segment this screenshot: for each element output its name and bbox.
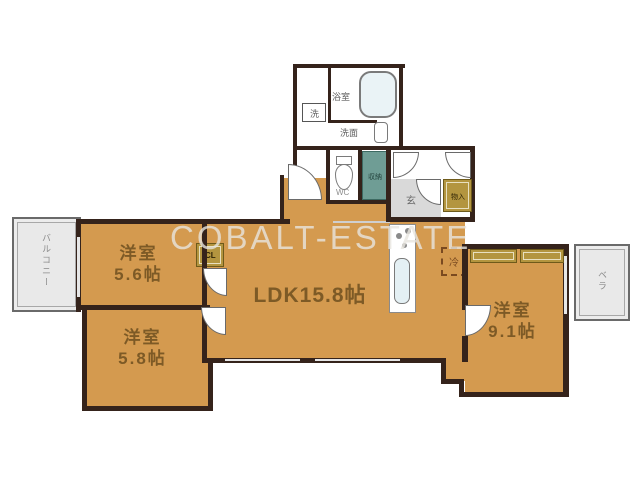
wall — [293, 64, 405, 68]
washer-label: 洗 — [310, 107, 319, 120]
wall — [280, 175, 284, 224]
floor-plan: バルコニー ベラ 浴室 洗 洗面 WC 収納 玄 — [0, 0, 640, 480]
bath-label: 浴室 — [332, 90, 350, 103]
wall — [459, 379, 464, 397]
window-segment — [564, 256, 567, 314]
kitchen-sink-icon — [394, 258, 410, 304]
wall — [331, 120, 377, 123]
wall — [76, 305, 210, 310]
washroom-label: 洗面 — [340, 126, 358, 139]
watermark-text: COBALT-ESTATE — [170, 219, 471, 257]
window-segment — [315, 359, 400, 361]
wc-label: WC — [336, 188, 349, 197]
wall — [82, 305, 87, 411]
wall — [328, 67, 331, 123]
bedroom3-size: 9.1帖 — [470, 321, 555, 342]
wall — [208, 358, 213, 411]
washer-box: 洗 — [302, 103, 326, 122]
storage-closet: 収納 — [362, 151, 387, 200]
bedroom3-closet-inner — [473, 252, 514, 260]
bedroom3-closet-box — [520, 249, 564, 263]
bedroom3-label: 洋室 9.1帖 — [470, 300, 555, 343]
bedroom3-closet-inner — [523, 252, 561, 260]
balcony-right: ベラ — [574, 244, 630, 321]
wall — [293, 64, 297, 180]
bedroom2-name: 洋室 — [100, 327, 185, 348]
wall — [399, 64, 403, 150]
entrance-label: 玄 — [406, 192, 416, 207]
wall — [326, 200, 391, 204]
bedroom1-name: 洋室 — [96, 243, 181, 264]
bedroom1-size: 5.6帖 — [96, 264, 181, 285]
balcony-right-label: ベラ — [596, 270, 609, 292]
bathtub-icon — [359, 71, 397, 118]
hall-storage-box: 物入 — [443, 179, 472, 212]
bedroom3-closet-box — [470, 249, 517, 263]
wall — [459, 392, 569, 397]
wall — [462, 336, 468, 362]
window-segment — [225, 359, 300, 361]
balcony-left-label: バルコニー — [40, 233, 53, 288]
wall — [326, 150, 330, 204]
bedroom3-notch-floor — [446, 360, 466, 381]
sink-icon — [374, 122, 388, 143]
ldk-label: LDK15.8帖 — [235, 283, 385, 309]
hall-storage-label: 物入 — [451, 192, 465, 202]
wall — [82, 406, 213, 411]
bedroom1-label: 洋室 5.6帖 — [96, 243, 181, 286]
bedroom2-size: 5.8帖 — [100, 348, 185, 369]
balcony-left: バルコニー — [12, 217, 81, 312]
washroom-door-arc — [288, 164, 322, 200]
storage-label: 収納 — [368, 172, 382, 182]
bedroom3-name: 洋室 — [470, 300, 555, 321]
window-segment — [77, 237, 80, 297]
bedroom2-label: 洋室 5.8帖 — [100, 327, 185, 370]
